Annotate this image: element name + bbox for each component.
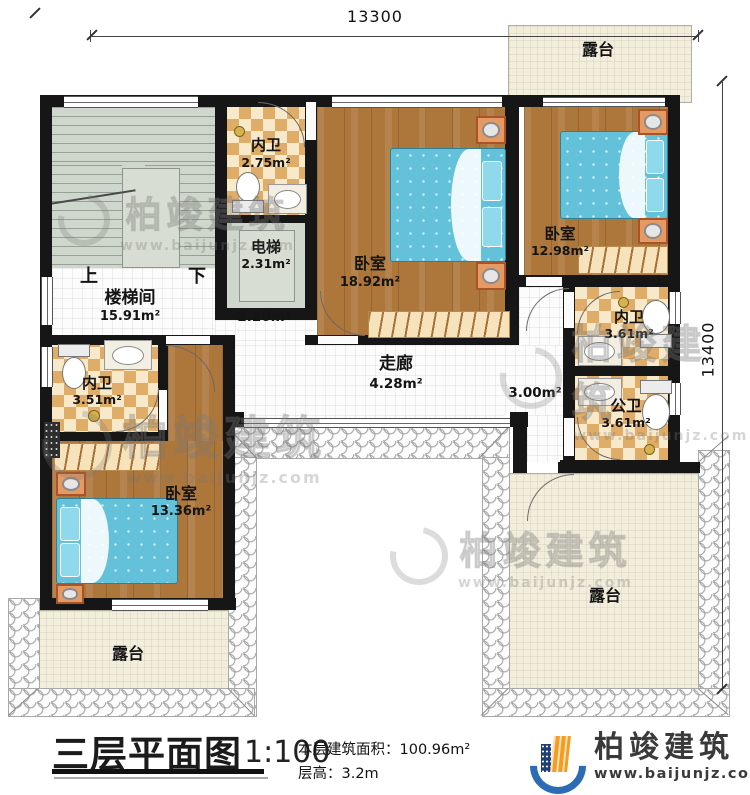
floor-area-label: 本层建筑面积： xyxy=(298,742,400,758)
wall xyxy=(228,412,244,427)
window xyxy=(332,96,502,108)
pillow-icon xyxy=(60,507,80,541)
room-label-bedroom-main: 卧室 xyxy=(328,256,412,273)
roof-band-middle-right xyxy=(482,457,510,690)
room-area-bedroom-left: 13.36m² xyxy=(142,505,220,519)
door-opening xyxy=(166,336,210,344)
wall xyxy=(668,95,680,472)
passage-floor-3 xyxy=(527,415,563,462)
cabinet-icon xyxy=(44,422,60,458)
room-area-bath-top: 2.75m² xyxy=(227,156,305,169)
room-area-elevator: 2.31m² xyxy=(227,257,305,270)
nightstand-icon xyxy=(56,584,84,604)
room-label-terrace-br: 露台 xyxy=(563,588,647,605)
nightstand-icon xyxy=(476,262,506,290)
dimension-label-top: 13300 xyxy=(320,7,430,26)
toilet-tank-icon xyxy=(232,200,264,213)
stair-treads xyxy=(52,165,122,268)
dimension-tick xyxy=(29,7,40,18)
brand-name: 柏竣建筑 xyxy=(594,733,734,763)
window xyxy=(41,277,53,325)
title-underline xyxy=(52,769,264,774)
door-opening xyxy=(564,418,574,456)
brand-website: www.baijunjz.com xyxy=(594,766,750,783)
window xyxy=(64,96,198,108)
roof-band-bl-bottom xyxy=(8,688,255,717)
room-area-bedroom-main: 18.92m² xyxy=(322,276,418,290)
room-label-bedroom-left: 卧室 xyxy=(148,486,214,503)
sliding-door xyxy=(112,599,208,611)
toilet-tank-icon xyxy=(58,344,90,357)
door-opening xyxy=(526,277,562,286)
roof-band-br-right xyxy=(698,450,730,717)
watermark-logo-icon xyxy=(379,515,460,596)
room-label-bath-left: 内卫 xyxy=(60,376,134,392)
landing-area-label: 2.20m² xyxy=(224,310,304,324)
door-opening xyxy=(318,336,358,344)
floor-height-label: 层高： xyxy=(298,766,342,782)
bed-icon xyxy=(560,131,668,219)
nightstand-icon xyxy=(476,116,506,144)
bed-icon xyxy=(390,148,506,262)
dimension-line-right xyxy=(722,82,723,690)
floor-area-value: 100.96m² xyxy=(400,742,471,758)
wardrobe-icon xyxy=(368,311,510,338)
room-label-bath-public: 公卫 xyxy=(594,398,658,414)
sink-icon xyxy=(274,190,301,209)
fixture-dot-icon xyxy=(234,126,245,137)
pillow-icon xyxy=(646,178,664,212)
floor-height-info: 层高：3.2m xyxy=(298,762,379,783)
stair-platform xyxy=(122,168,180,268)
wall xyxy=(513,415,527,473)
sliding-door xyxy=(543,97,665,107)
fixture-dot-icon xyxy=(88,410,100,422)
dimension-line-top xyxy=(92,36,698,37)
room-label-stairwell: 楼梯间 xyxy=(72,290,188,308)
blanket-icon xyxy=(81,499,109,583)
dimension-label-right: 13400 xyxy=(699,315,718,385)
room-label-bedroom-right: 卧室 xyxy=(526,226,594,242)
pillow-icon xyxy=(482,161,502,201)
room-label-elevator: 电梯 xyxy=(227,240,305,256)
passage-area-label: 3.00m² xyxy=(498,386,572,400)
nightstand-icon xyxy=(638,109,668,135)
pillow-icon xyxy=(60,543,80,577)
toilet-tank-icon xyxy=(640,380,672,394)
pillow-icon xyxy=(482,207,502,247)
wall xyxy=(48,432,166,441)
room-area-corridor: 4.28m² xyxy=(354,377,438,391)
wall xyxy=(558,462,700,473)
nightstand-icon xyxy=(638,218,668,244)
stair-treads xyxy=(52,107,215,165)
window xyxy=(669,292,681,324)
wall xyxy=(563,366,680,376)
stair-down-label: 下 xyxy=(184,268,210,287)
room-label-terrace-top: 露台 xyxy=(558,42,638,59)
passage-floor-2 xyxy=(505,345,563,415)
toilet-icon xyxy=(236,172,260,202)
room-area-bath-right: 3.61m² xyxy=(596,327,662,340)
dimension-tick xyxy=(86,29,97,40)
room-label-corridor: 走廊 xyxy=(356,356,436,374)
pillow-icon xyxy=(646,140,664,174)
stair-up-label: 上 xyxy=(76,268,102,287)
sink-icon xyxy=(584,342,615,361)
wall xyxy=(223,335,235,610)
wall xyxy=(215,215,317,223)
brand-logo: 柏竣建筑 www.baijunjz.com xyxy=(528,728,750,788)
door-opening xyxy=(306,102,316,140)
nightstand-icon xyxy=(56,472,86,496)
floor-plan-canvas: 露台 内卫 2.75m² 电梯 2.31m² 卧室 18.92m² 卧室 12.… xyxy=(0,0,750,795)
room-area-bath-public: 3.61m² xyxy=(592,416,660,429)
roof-band-br-bottom xyxy=(482,688,730,717)
fixture-dot-icon xyxy=(644,444,655,455)
room-label-bath-top: 内卫 xyxy=(227,138,305,154)
door-opening xyxy=(159,390,167,430)
floor-area-info: 本层建筑面积：100.96m² xyxy=(298,738,470,759)
wardrobe-icon xyxy=(54,443,160,471)
blanket-icon xyxy=(451,149,481,261)
room-area-stairwell: 15.91m² xyxy=(72,310,188,324)
room-label-bath-right: 内卫 xyxy=(598,310,660,326)
roof-band-middle-top xyxy=(228,427,510,459)
wall xyxy=(215,95,227,320)
wall xyxy=(505,95,519,345)
title-underline-thin xyxy=(54,777,268,779)
window xyxy=(41,347,53,387)
room-area-bedroom-right: 12.98m² xyxy=(520,244,600,257)
room-area-bath-left: 3.51m² xyxy=(58,393,136,406)
floor-height-value: 3.2m xyxy=(342,766,379,782)
sink-icon xyxy=(112,346,144,365)
glass-wall xyxy=(244,418,510,428)
blanket-icon xyxy=(619,132,645,218)
room-label-terrace-bl: 露台 xyxy=(86,646,170,663)
brand-logo-icon xyxy=(528,728,584,788)
